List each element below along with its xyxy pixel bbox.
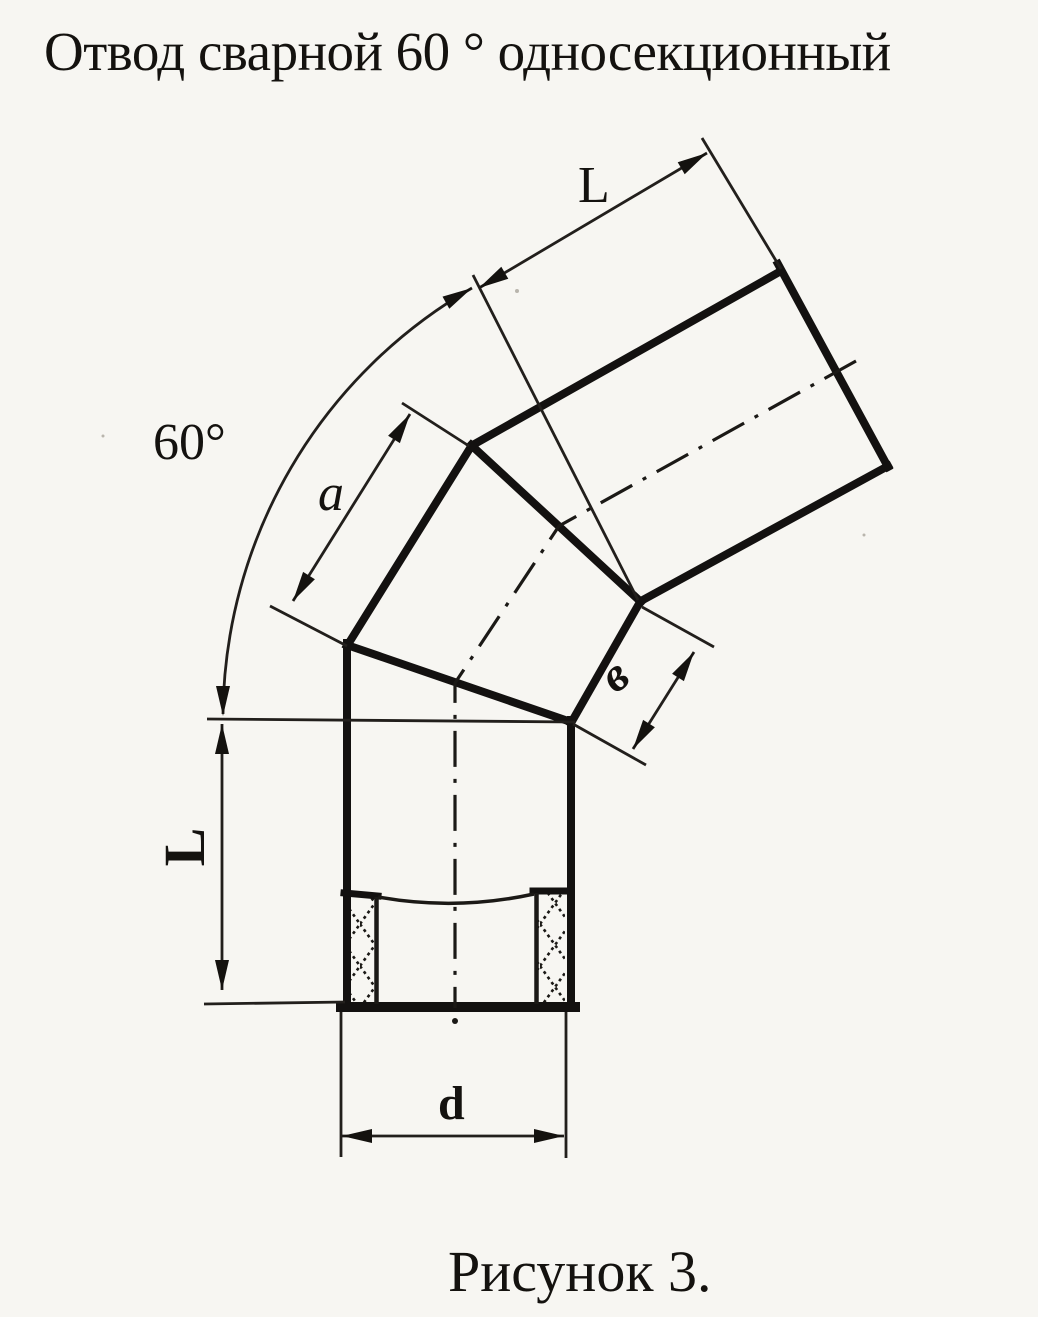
hatch-right [538, 894, 565, 1002]
ext-v-top [642, 607, 714, 647]
arrow-L-top-right [678, 153, 707, 174]
hatched-wall-zones [349, 894, 565, 1002]
axis-end-dot [452, 1018, 458, 1024]
arrow-arc-bottom [216, 686, 230, 716]
ext-a-top [402, 403, 469, 446]
arrow-L-left-top [215, 724, 229, 754]
lower-weld-seam [347, 645, 571, 722]
middle-section-left-edge [347, 445, 472, 646]
pipe-outline [341, 264, 888, 1007]
arrow-a-top [388, 414, 410, 443]
length-label-top: L [578, 160, 610, 212]
pipe-axis-centerline [452, 361, 856, 1024]
dimension-arrowheads [215, 153, 707, 1143]
diameter-label: d [438, 1080, 465, 1128]
angle-label: 60° [153, 417, 226, 469]
scanned-drawing-page: Отвод сварной 60 ° односекционный 60° L … [0, 0, 1038, 1317]
arrow-arc-top [443, 288, 473, 309]
arrow-L-top-left [479, 267, 508, 288]
upper-pipe-top-edge [471, 271, 781, 446]
length-label-left: L [156, 812, 214, 882]
ext-upper-L-right [702, 138, 781, 269]
scan-noise [102, 289, 866, 537]
ext-upper-L-left [473, 275, 638, 600]
ext-horizontal-bottom [204, 1002, 345, 1004]
section-a-label: a [318, 468, 344, 520]
elbow-technical-drawing [0, 0, 1038, 1317]
axis-polyline [455, 361, 856, 1008]
socket-top-curve [378, 894, 534, 903]
upper-pipe-end-face [778, 264, 888, 467]
upper-pipe-bottom-edge [641, 466, 888, 601]
upper-weld-seam [471, 445, 641, 602]
arrow-v-top [672, 652, 694, 681]
arrow-d-right [534, 1129, 564, 1143]
arrow-a-bottom [293, 572, 315, 601]
hatch-cap-left [344, 893, 378, 896]
arrow-v-bottom [633, 720, 655, 749]
drawing-title: Отвод сварной 60 ° односекционный [44, 20, 891, 83]
ext-a-bottom [270, 606, 347, 646]
hatch-left [349, 896, 374, 1002]
arrow-d-left [342, 1129, 372, 1143]
figure-caption: Рисунок 3. [448, 1238, 712, 1305]
arrow-L-left-bottom [215, 960, 229, 990]
ext-horizontal-top [207, 719, 575, 722]
